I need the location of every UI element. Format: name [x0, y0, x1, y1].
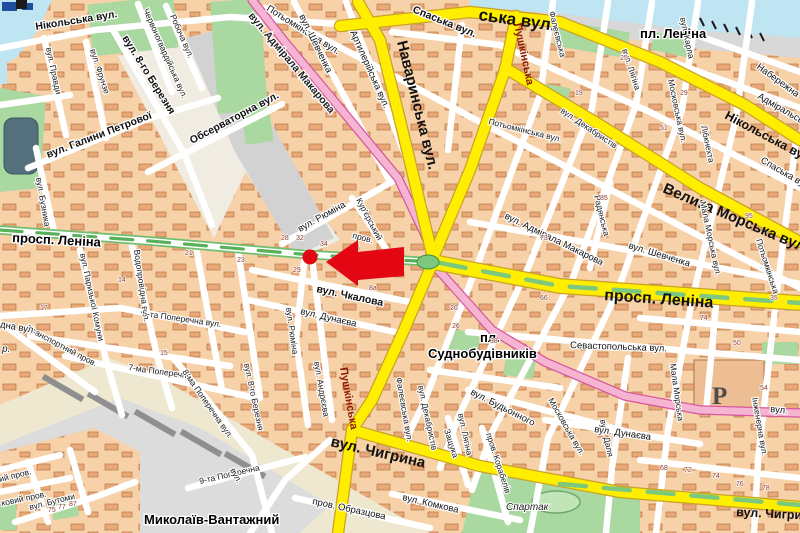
label-pl-lenina: пл. Леніна: [640, 26, 707, 41]
house-number: 14: [118, 277, 126, 284]
house-number: 35: [770, 295, 778, 302]
house-number: 66: [540, 295, 548, 302]
house-number: 50: [733, 340, 741, 347]
city-map[interactable]: Наваринська вул. ська вул. Нікольська ву…: [0, 0, 800, 533]
house-number: 38: [490, 338, 498, 345]
house-number: 54: [760, 385, 768, 392]
label-spartak: Спартак: [506, 502, 550, 513]
house-number: 17: [40, 305, 48, 312]
house-number: 29: [680, 90, 688, 97]
house-number: 8а: [369, 285, 377, 292]
house-number: 28: [281, 235, 289, 242]
building-block: [16, 0, 27, 9]
house-number: 76: [736, 481, 744, 488]
house-number: 73: [540, 235, 548, 242]
junction-green-oval: [417, 255, 439, 269]
label-mykolaiv-vantazhnyi: Миколаїв-Вантажний: [144, 512, 279, 527]
house-number: 74: [700, 315, 708, 322]
house-number: 20: [450, 305, 458, 312]
house-number: 21: [185, 250, 193, 257]
house-number: 25: [620, 55, 628, 62]
label-vul-frag-r: вул.: [770, 404, 788, 416]
house-number: 23: [237, 257, 245, 264]
house-number: 87: [69, 501, 77, 508]
house-number: 29: [293, 267, 301, 274]
house-number: 26: [452, 323, 460, 330]
house-number: 15: [160, 350, 168, 357]
marker-dot-icon: [303, 250, 318, 265]
house-number: 74: [712, 473, 720, 480]
house-number: 78: [762, 485, 770, 492]
house-number: 77: [58, 504, 66, 511]
label-pl-sudnobudivnykiv-2: Суднобудівників: [428, 346, 537, 361]
house-number: 75: [48, 507, 56, 514]
house-number: 34: [320, 241, 328, 248]
house-number: 19: [575, 90, 583, 97]
house-number: 95: [745, 213, 753, 220]
house-number: 68: [660, 465, 668, 472]
label-parking: Р: [712, 383, 727, 410]
house-number: 85: [600, 195, 608, 202]
house-number: 72: [684, 467, 692, 474]
map-viewport[interactable]: Наваринська вул. ська вул. Нікольська ву…: [0, 0, 800, 533]
house-number: 51: [660, 125, 668, 132]
house-number: 32: [296, 235, 304, 242]
label-richka: р.: [1, 344, 10, 355]
